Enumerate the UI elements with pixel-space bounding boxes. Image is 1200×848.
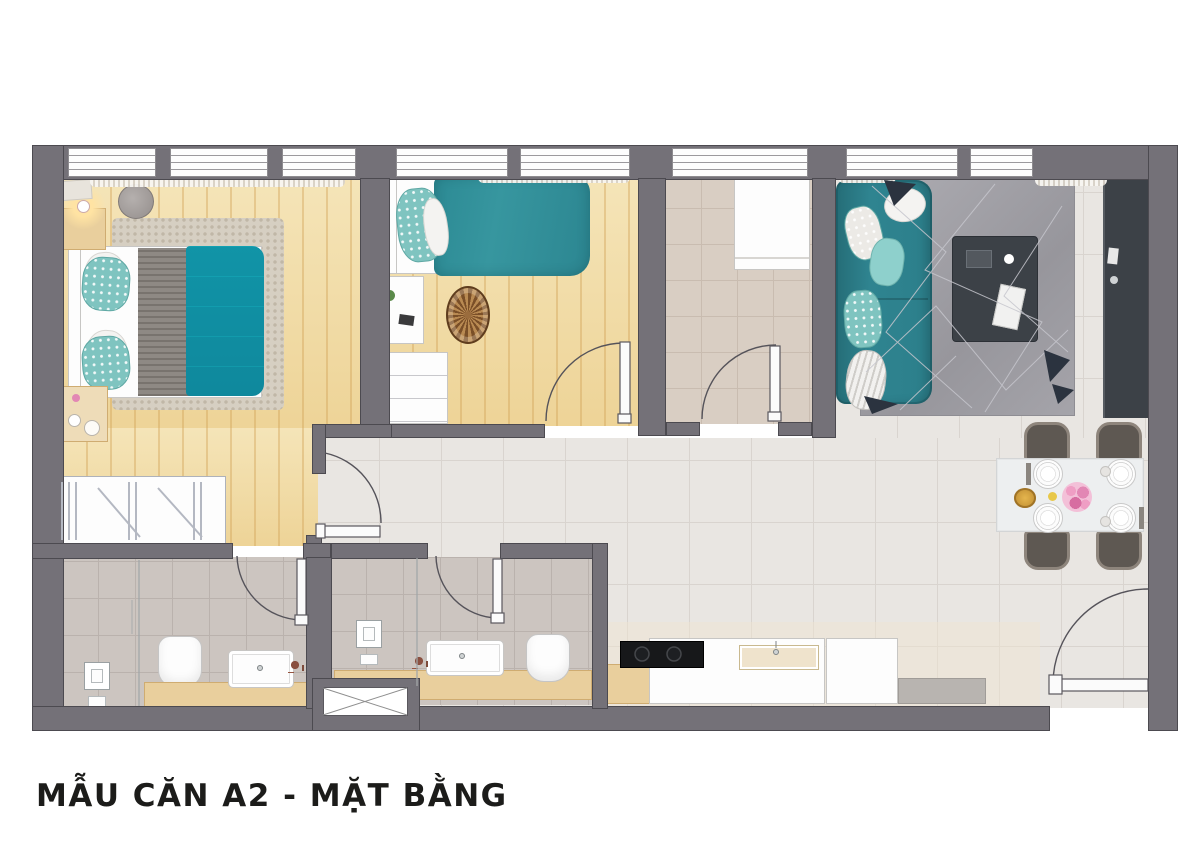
wall-stub-doorway-top [312, 424, 326, 474]
window-bedroom1-b [170, 148, 268, 177]
wall-laundry-bottom-right [778, 422, 812, 436]
wall-bath2-top-left [331, 543, 428, 559]
table-lamp [77, 200, 90, 213]
wall-laundry-bottom-left [666, 422, 700, 436]
dining-chair-bottom-left [1024, 530, 1070, 570]
gray-counter [898, 678, 986, 704]
wall-bedroom-divider [360, 178, 390, 438]
window-living-b [970, 148, 1033, 177]
round-pouf [118, 184, 154, 219]
toilet-2 [526, 634, 570, 682]
coffee-table-tray [966, 250, 992, 268]
shower-stand-2 [360, 654, 378, 665]
knit-blanket [138, 248, 190, 396]
tv-cabinet-deco-1 [1107, 248, 1119, 265]
cutlery-left [1026, 463, 1031, 485]
tv-cabinet-deco-2 [1110, 276, 1118, 284]
shower-panel-1 [84, 662, 110, 690]
coffee-table-bowl [1004, 254, 1014, 264]
wardrobe [48, 476, 226, 544]
window-bedroom1-a [68, 148, 156, 177]
single-bed-duvet [434, 176, 590, 276]
teacup-1 [1100, 466, 1111, 477]
dining-chair-top-left [1024, 422, 1070, 462]
wall-frames-deco [61, 179, 92, 201]
flower-deco-bath2 [412, 654, 426, 668]
window-living-a [846, 148, 958, 177]
plate-top-left [1033, 459, 1063, 489]
wall-bath2-top-right [500, 543, 604, 559]
kitchen-wood-cabinet [606, 664, 652, 704]
teacup-2 [1100, 516, 1111, 527]
wall-bedroom1-bottom [32, 543, 233, 559]
gold-dish [1014, 488, 1036, 508]
flower-centerpiece [1062, 482, 1092, 512]
wall-laundry-left [638, 178, 666, 436]
wall-corridor-top [318, 424, 392, 438]
floor-plan-canvas: MẪU CĂN A2 - MẶT BẰNG [0, 0, 1200, 848]
coffee-cup-1 [68, 414, 81, 427]
window-bedroom2-a [396, 148, 508, 177]
wall-bottom [32, 706, 1050, 731]
wall-left [32, 145, 64, 731]
shower-panel-2 [356, 620, 382, 648]
dining-chair-bottom-right [1096, 530, 1142, 570]
deco-pink-item [72, 394, 80, 402]
dining-chair-top-right [1096, 422, 1142, 462]
cooktop [620, 641, 704, 668]
cutlery-right [1139, 507, 1144, 529]
technical-shaft [323, 687, 408, 716]
wall-bath2-right [592, 543, 608, 709]
drawer-unit [380, 352, 448, 424]
window-laundry [672, 148, 808, 177]
nightstand-bottom [62, 386, 108, 442]
coffee-cup-2 [84, 420, 100, 436]
wall-right [1148, 145, 1178, 731]
lemon-dish [1048, 492, 1057, 501]
window-bedroom2-b [520, 148, 630, 177]
tv-cabinet [1103, 176, 1148, 418]
wicker-basket [446, 286, 490, 344]
flower-deco-bath1 [288, 658, 302, 672]
refrigerator [826, 638, 898, 704]
sink-2 [426, 640, 504, 676]
plate-bottom-left [1033, 503, 1063, 533]
sofa-pillow-4 [842, 289, 884, 350]
teal-duvet [186, 246, 264, 396]
sink-1 [228, 650, 294, 688]
plate-bottom-right [1106, 503, 1136, 533]
window-bedroom1-c [282, 148, 356, 177]
kitchen-sink [740, 646, 818, 669]
bed-pillow-teal-2 [80, 334, 132, 391]
wall-bedroom2-bottom [390, 424, 545, 438]
laundry-cabinet [734, 178, 810, 270]
plan-title: MẪU CĂN A2 - MẶT BẰNG [36, 778, 508, 814]
desk-laptop [398, 314, 414, 326]
toilet-1 [158, 636, 202, 688]
wall-laundry-right [812, 178, 836, 438]
plate-top-right [1106, 459, 1136, 489]
bed-pillow-teal-1 [80, 255, 132, 312]
